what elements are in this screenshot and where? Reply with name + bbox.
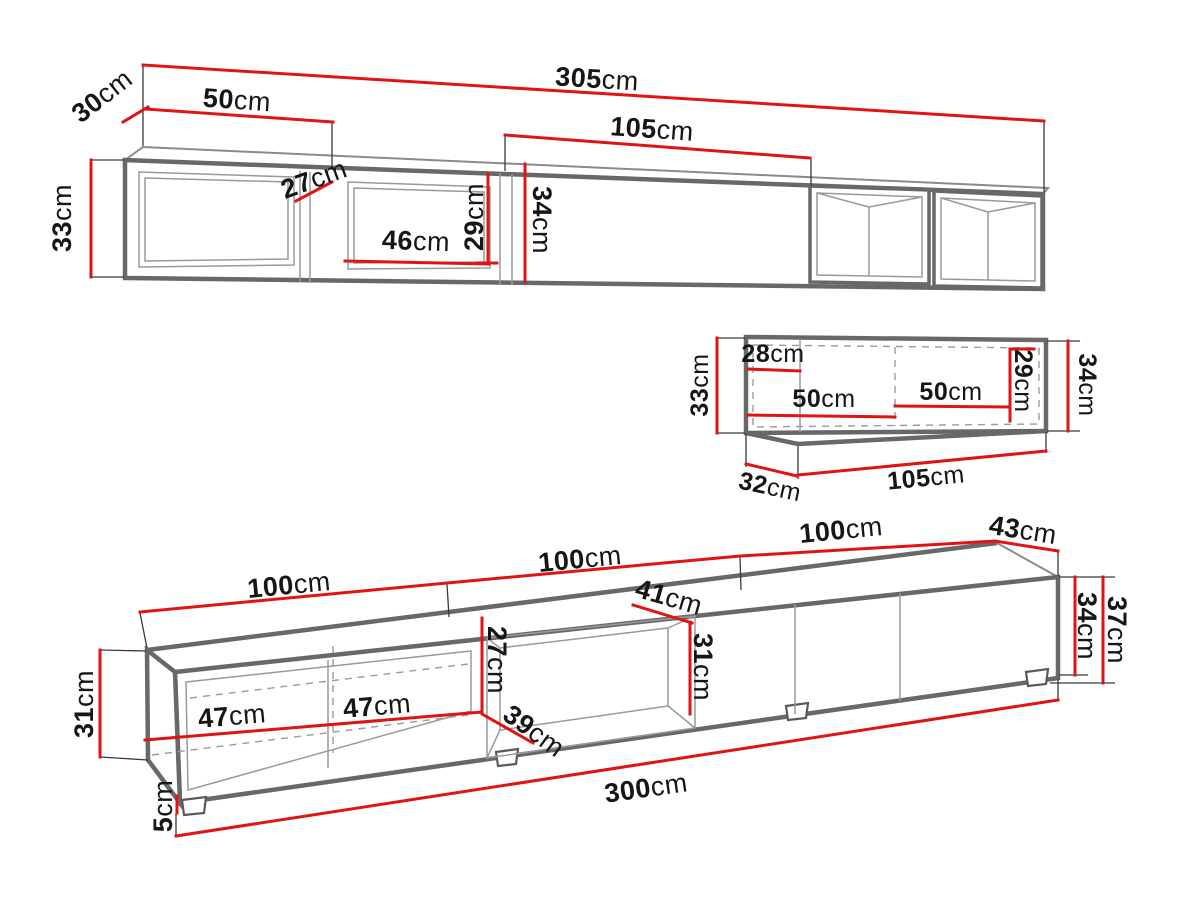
dim-tv-total-height: 37cm [1102, 596, 1132, 664]
dim-tv-section3: 100cm [798, 511, 884, 549]
dim-shelf-left-height: 33cm [47, 184, 77, 252]
dim-small-right-height: 34cm [1073, 353, 1101, 416]
dim-small-inner-right: 50cm [919, 378, 982, 406]
dim-shelf-left-section: 50cm [202, 83, 272, 118]
dim-tv-inner-width-2: 47cm [342, 688, 412, 724]
furniture-dimension-diagram: 305cm 30cm 50cm 27cm 46cm 29cm 34cm 33cm… [0, 0, 1200, 899]
dim-shelf-niche-height: 29cm [459, 183, 489, 251]
dim-tv-inner-width-1: 47cm [197, 698, 267, 734]
dim-tv-left-height: 31cm [69, 670, 99, 738]
dim-shelf-mid-section: 105cm [609, 111, 694, 147]
dim-tv-niche-front-height: 27cm [482, 626, 512, 694]
dim-small-width: 105cm [886, 460, 966, 495]
dim-tv-total-width: 300cm [603, 767, 690, 808]
dim-shelf-total-width: 305cm [554, 61, 639, 96]
dim-tv-niche-back-height: 31cm [688, 633, 718, 701]
dim-small-inner-height: 29cm [1009, 349, 1037, 412]
dim-small-left-height: 33cm [686, 353, 714, 416]
dim-tv-section1: 100cm [246, 566, 332, 604]
dim-tv-section2: 100cm [537, 540, 623, 578]
dim-tv-body-height: 34cm [1072, 592, 1102, 660]
dim-tv-foot-height: 5cm [148, 780, 178, 833]
dim-small-left-inner: 28cm [741, 340, 804, 368]
dim-small-inner-left: 50cm [792, 385, 855, 413]
dim-shelf-front-height: 34cm [527, 186, 557, 254]
dim-small-depth: 32cm [736, 467, 804, 508]
dim-shelf-niche-width: 46cm [381, 225, 450, 257]
